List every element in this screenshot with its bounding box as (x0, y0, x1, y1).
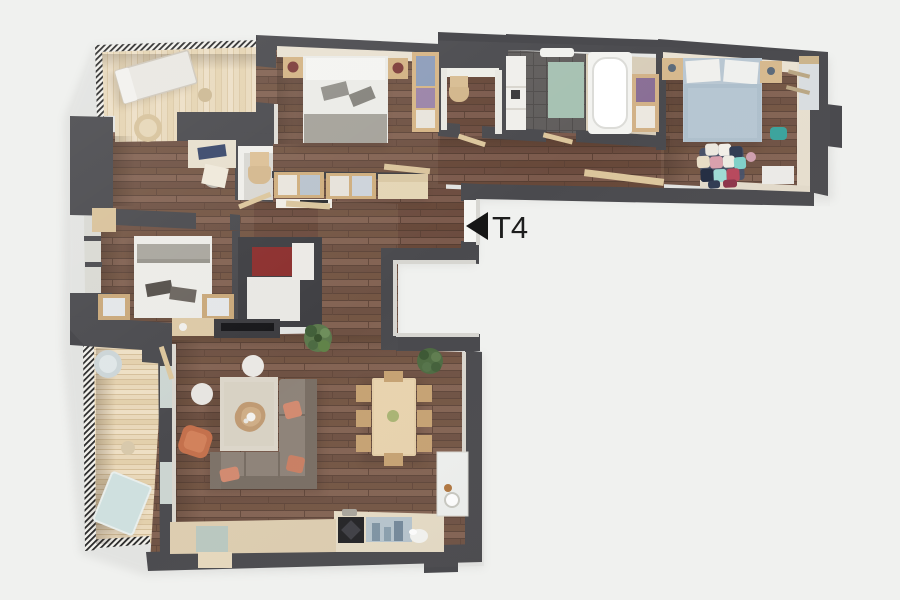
svg-text:T4: T4 (492, 210, 528, 245)
